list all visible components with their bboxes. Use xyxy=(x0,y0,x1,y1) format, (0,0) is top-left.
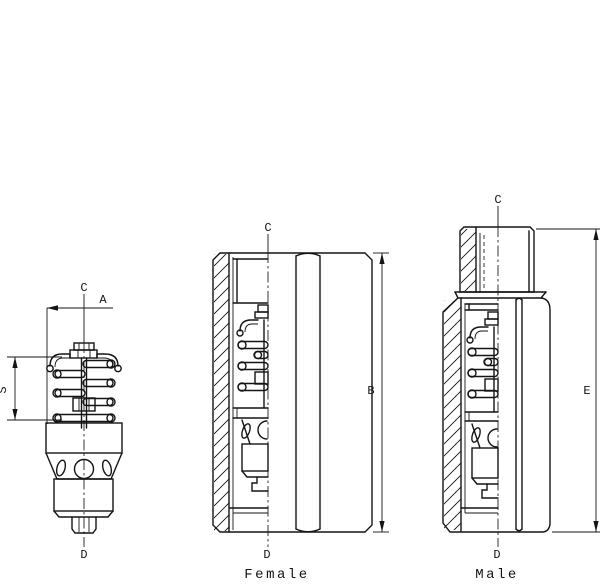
figure-male-housing: C E D Male xyxy=(443,193,600,583)
dim-arrow-b-top xyxy=(379,253,384,264)
dim-label-b: B xyxy=(367,384,374,398)
dim-arrow-a-left xyxy=(47,305,58,310)
male-internal-valve xyxy=(461,304,498,513)
female-section-hatch xyxy=(214,254,229,531)
dim-label-a: A xyxy=(99,293,107,307)
dim-arrow-b-bottom xyxy=(379,521,384,532)
male-thread-boss xyxy=(460,227,534,292)
drawing-sheet: C A S D xyxy=(0,0,600,585)
dim-label-s: S xyxy=(0,386,10,393)
dim-label-c-male: C xyxy=(494,193,501,207)
figure-female-housing: C B D Female xyxy=(213,221,389,583)
dim-arrow-e-bottom xyxy=(593,521,598,532)
female-dimensions: C B D Female xyxy=(244,221,389,583)
dim-label-c-female: C xyxy=(264,221,271,235)
valve-drawing-canvas: C A S D xyxy=(0,0,600,585)
figure-valve-insert: C A S D xyxy=(0,281,122,562)
female-ball-half xyxy=(258,421,267,439)
dim-label-d-insert: D xyxy=(80,548,87,562)
dim-label-e: E xyxy=(583,384,590,398)
dim-label-d-female: D xyxy=(263,548,270,562)
male-section-hatch xyxy=(444,300,461,530)
dim-arrow-e-top xyxy=(593,229,598,240)
dim-arrow-s-bottom xyxy=(12,409,17,420)
dim-arrow-s-top xyxy=(12,357,17,368)
male-ball-half xyxy=(488,429,497,447)
dim-label-c-insert: C xyxy=(80,281,87,295)
insert-top-nut xyxy=(70,343,97,358)
dim-label-d-male: D xyxy=(493,548,500,562)
female-internal-valve xyxy=(229,259,268,513)
caption-female: Female xyxy=(244,567,309,583)
caption-male: Male xyxy=(475,567,519,583)
